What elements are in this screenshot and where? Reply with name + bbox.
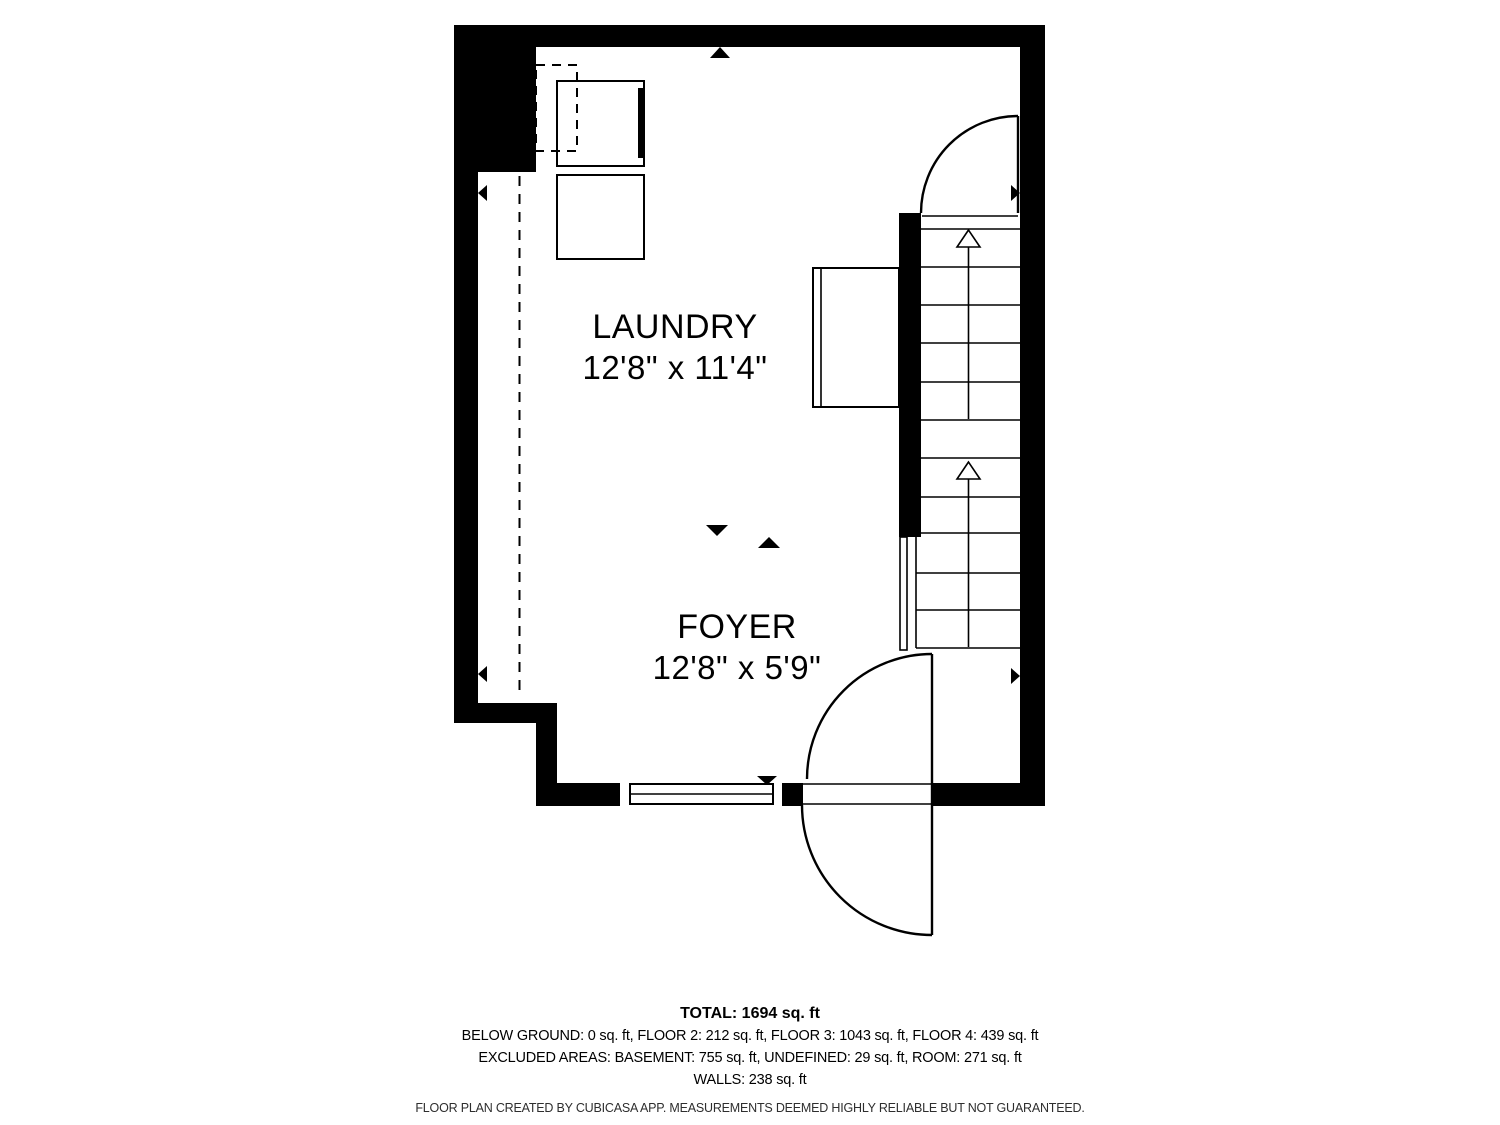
window-symbol: [630, 776, 777, 804]
room-label-foyer: FOYER 12'8" x 5'9": [587, 607, 887, 687]
stairs-up-arrow-head-icon: [957, 230, 980, 247]
marker-up-icon: [710, 47, 730, 58]
walls: [454, 25, 1045, 806]
floors-area-text: BELOW GROUND: 0 sq. ft, FLOOR 2: 212 sq.…: [0, 1025, 1500, 1047]
stair-railing: [900, 537, 907, 650]
appliance-dryer: [557, 175, 644, 259]
excluded-area-text: EXCLUDED AREAS: BASEMENT: 755 sq. ft, UN…: [0, 1047, 1500, 1069]
wall-top: [454, 25, 1045, 47]
room-dimensions: 12'8" x 5'9": [587, 649, 887, 687]
wall-left: [454, 47, 478, 723]
door-swing-arc: [802, 805, 932, 935]
wall-stair-left: [899, 213, 921, 537]
area-summary: TOTAL: 1694 sq. ft BELOW GROUND: 0 sq. f…: [0, 1002, 1500, 1116]
floorplan-drawing: [0, 0, 1500, 1125]
room-dimensions: 12'8" x 11'4": [525, 349, 825, 387]
disclaimer-text: FLOOR PLAN CREATED BY CUBICASA APP. MEAS…: [0, 1100, 1500, 1116]
total-area-text: TOTAL: 1694 sq. ft: [0, 1002, 1500, 1025]
closet: [813, 268, 899, 407]
marker-up-icon: [758, 537, 780, 548]
marker-left-icon: [478, 666, 487, 682]
appliance-door-bar: [638, 88, 643, 158]
stairs-up-arrow-head-icon: [957, 462, 980, 479]
marker-left-icon: [478, 185, 487, 201]
door-swing-arc: [921, 116, 1018, 213]
wall-bottom-left: [536, 783, 620, 806]
marker-right-icon: [1011, 668, 1020, 684]
room-name: FOYER: [587, 607, 887, 647]
room-name: LAUNDRY: [525, 307, 825, 347]
marker-down-icon: [706, 525, 728, 536]
wall-right: [1020, 25, 1045, 806]
walls-area-text: WALLS: 238 sq. ft: [0, 1069, 1500, 1091]
floorplan-canvas: LAUNDRY 12'8" x 11'4" FOYER 12'8" x 5'9"…: [0, 0, 1500, 1125]
appliance-washer: [557, 81, 644, 166]
room-label-laundry: LAUNDRY 12'8" x 11'4": [525, 307, 825, 387]
wall-bottom-middle: [782, 783, 803, 806]
wall-step-horizontal: [454, 703, 557, 723]
